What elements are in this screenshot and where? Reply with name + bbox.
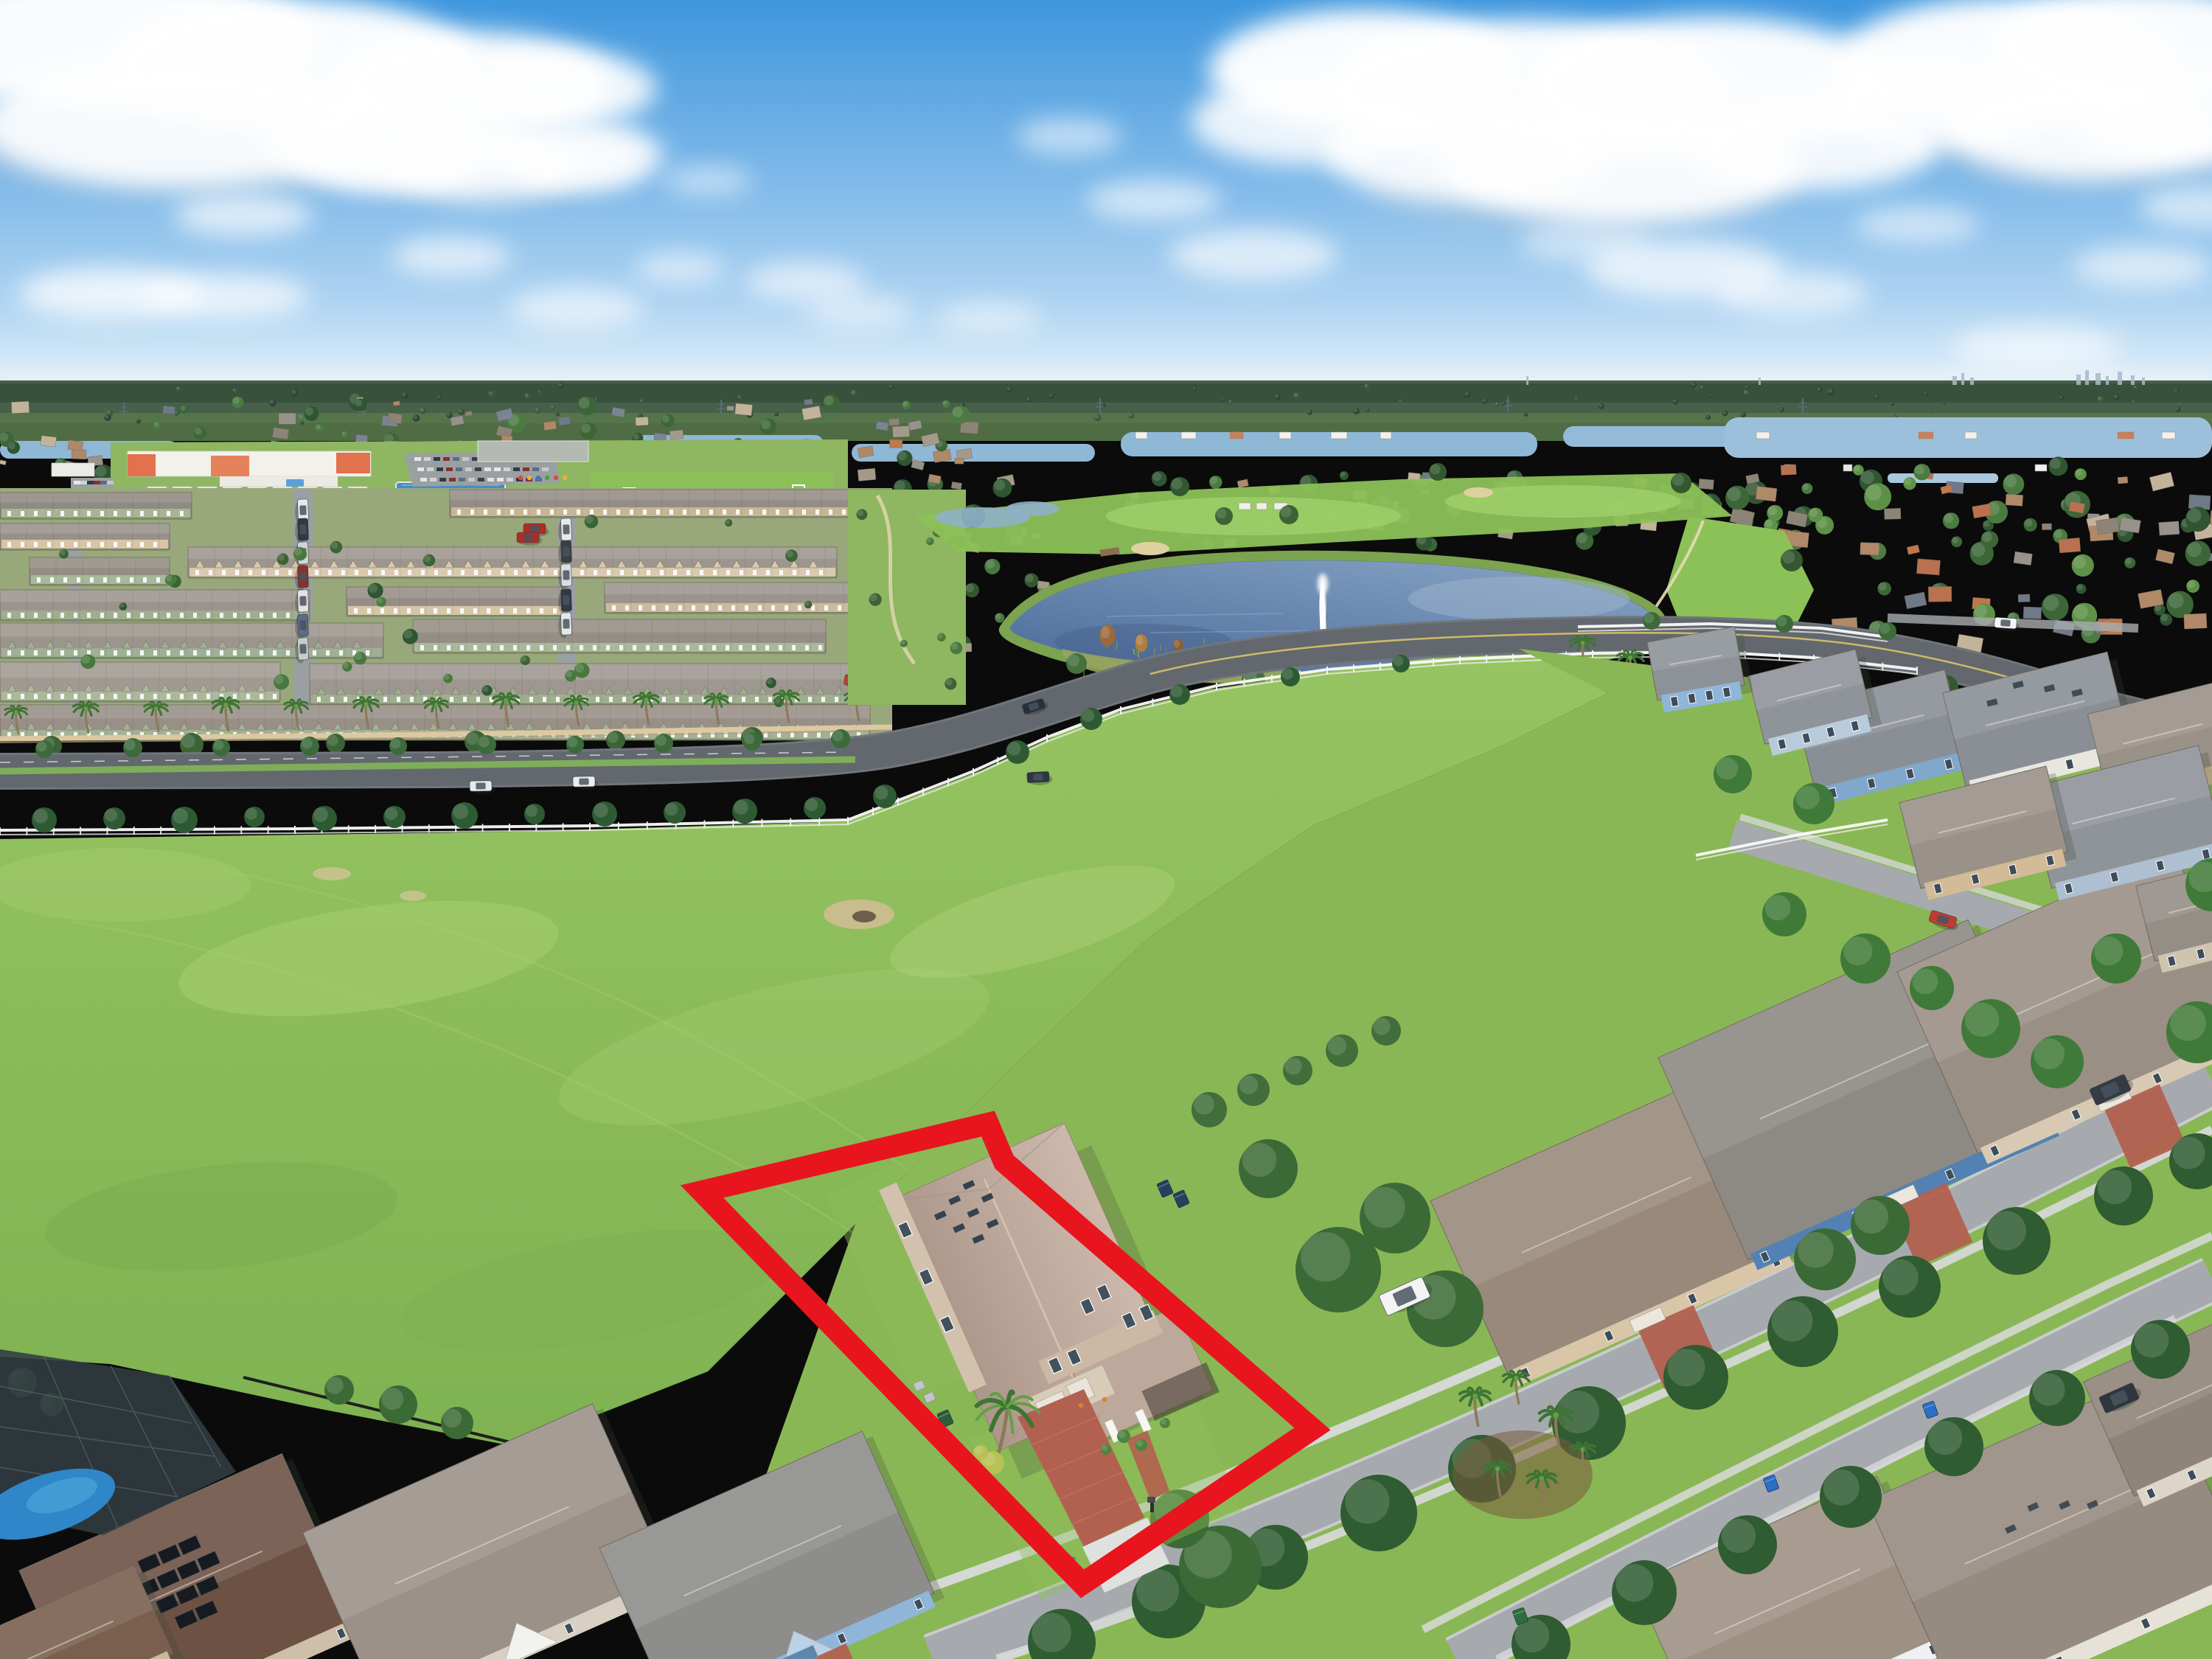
- parked-car: [494, 467, 501, 471]
- parked-car: [468, 478, 475, 481]
- waterfront-house: [2118, 432, 2134, 439]
- cloud: [2072, 246, 2212, 288]
- parked-car: [420, 478, 427, 481]
- distant-house: [163, 406, 175, 414]
- parked-car: [523, 467, 529, 471]
- waterfront-house: [1256, 503, 1267, 509]
- parked-car: [487, 478, 494, 481]
- distant-house: [889, 418, 900, 425]
- parked-car: [417, 467, 424, 471]
- parked-car: [424, 457, 431, 461]
- distant-house: [2118, 476, 2128, 484]
- skyscraper: [2131, 375, 2135, 385]
- parked-car: [465, 467, 472, 471]
- parked-car: [427, 467, 434, 471]
- distant-house: [0, 460, 7, 465]
- cloud: [140, 274, 310, 319]
- cloud: [1016, 118, 1122, 155]
- skyscraper: [1526, 376, 1528, 385]
- parked-car: [414, 457, 421, 461]
- distant-house: [1756, 486, 1777, 501]
- distant-house: [951, 481, 962, 490]
- car: [470, 781, 495, 795]
- skyscraper: [1970, 378, 1974, 385]
- cloud: [1519, 224, 1652, 262]
- distant-house: [41, 436, 57, 447]
- cloud: [509, 288, 644, 329]
- parked-car: [437, 467, 443, 471]
- parked-car: [497, 478, 504, 481]
- car: [1994, 617, 2020, 632]
- parked-car: [434, 457, 440, 461]
- distant-house: [669, 430, 684, 439]
- distant-house: [735, 403, 753, 416]
- car: [573, 776, 599, 790]
- parked-car: [446, 467, 453, 471]
- car: [517, 532, 543, 546]
- cloud: [634, 252, 726, 285]
- parked-car: [453, 457, 459, 461]
- skyscraper: [2085, 370, 2089, 385]
- waterfront-house: [1919, 432, 1933, 439]
- parked-car: [94, 481, 100, 484]
- parked-car: [478, 478, 484, 481]
- parked-car: [532, 467, 539, 471]
- cloud: [1714, 271, 1869, 316]
- distant-house: [2018, 594, 2030, 602]
- distant-house: [1860, 543, 1879, 555]
- distant-house: [2059, 538, 2081, 552]
- parked-car: [430, 478, 437, 481]
- distant-house: [2155, 549, 2174, 564]
- distant-house: [876, 421, 888, 431]
- cloud: [1854, 206, 1980, 243]
- waterfront-house: [1239, 503, 1251, 509]
- parked-car: [74, 481, 80, 484]
- cloud: [806, 295, 912, 327]
- skyscraper: [1961, 373, 1964, 385]
- parked-car: [484, 467, 491, 471]
- distant-house: [2184, 613, 2207, 629]
- cloud: [391, 237, 512, 276]
- waterfront-house: [1135, 432, 1147, 439]
- cloud: [1952, 326, 2121, 370]
- distant-house: [68, 440, 83, 451]
- cloud: [745, 262, 866, 301]
- distant-house: [2149, 472, 2174, 491]
- distant-house: [1699, 479, 1714, 489]
- parked-car: [504, 467, 510, 471]
- distant-house: [955, 458, 964, 464]
- distant-house: [465, 411, 472, 417]
- parked-car: [443, 457, 450, 461]
- cloud: [465, 50, 656, 127]
- distant-house: [2006, 494, 2023, 506]
- distant-house: [1884, 508, 1901, 519]
- parked-car: [513, 467, 520, 471]
- skyscraper: [2142, 378, 2145, 385]
- distant-house: [2042, 524, 2051, 530]
- parked-car: [456, 467, 462, 471]
- parked-car: [87, 481, 94, 484]
- waterfront-house: [1331, 432, 1347, 439]
- distant-house: [393, 401, 400, 406]
- distant-house: [1237, 479, 1248, 488]
- skyscraper: [1952, 376, 1957, 385]
- distant-house: [890, 439, 902, 448]
- waterfront-house: [1843, 465, 1852, 471]
- waterfront-house: [1756, 432, 1770, 439]
- waterfront-house: [1181, 432, 1196, 439]
- parked-car: [462, 457, 469, 461]
- skyscraper: [2076, 375, 2081, 385]
- cloud: [1169, 229, 1338, 280]
- cloud: [498, 129, 645, 188]
- skyscraper: [1759, 378, 1761, 385]
- distant-house: [727, 406, 734, 411]
- waterfront-house: [1380, 432, 1391, 439]
- distant-house: [2014, 552, 2033, 566]
- distant-house: [272, 428, 288, 439]
- parked-car: [459, 478, 465, 481]
- parked-car: [439, 478, 446, 481]
- parked-car: [475, 467, 481, 471]
- cloud: [936, 302, 1043, 332]
- distant-house: [1916, 559, 1940, 575]
- distant-house: [1928, 586, 1952, 602]
- distant-house: [892, 425, 909, 437]
- cloud: [1086, 180, 1222, 221]
- waterfront-house: [1230, 432, 1243, 439]
- aerial-photo-stage: [0, 0, 2212, 1659]
- cloud: [1191, 79, 1412, 164]
- waterfront-house: [1279, 432, 1291, 439]
- distant-house: [558, 417, 570, 425]
- parked-car: [449, 478, 456, 481]
- distant-house: [11, 401, 29, 413]
- waterfront-house: [1965, 432, 1977, 439]
- skyscraper: [2096, 373, 2101, 385]
- waterfront-house: [2035, 465, 2047, 471]
- distant-house: [1905, 592, 1927, 609]
- distant-house: [2159, 521, 2180, 535]
- waterfront-house: [2162, 432, 2175, 439]
- cloud: [173, 195, 313, 236]
- distant-house: [2023, 607, 2042, 619]
- parked-car: [107, 481, 114, 484]
- skyscraper: [2106, 376, 2109, 385]
- distant-house: [636, 417, 649, 425]
- distant-house: [1907, 545, 1919, 554]
- parked-car: [80, 481, 87, 484]
- parked-car: [100, 481, 107, 484]
- distant-house: [543, 421, 557, 431]
- distant-house: [858, 468, 876, 481]
- parked-car: [507, 478, 513, 481]
- aerial-photo: [0, 0, 2212, 1659]
- townhouse-complex: [0, 488, 892, 757]
- distant-house: [804, 399, 813, 405]
- distant-house: [279, 413, 296, 424]
- cloud: [664, 166, 752, 195]
- skyscraper: [2118, 372, 2122, 385]
- distant-house: [1781, 465, 1796, 475]
- distant-house: [387, 413, 402, 424]
- parked-car: [542, 467, 549, 471]
